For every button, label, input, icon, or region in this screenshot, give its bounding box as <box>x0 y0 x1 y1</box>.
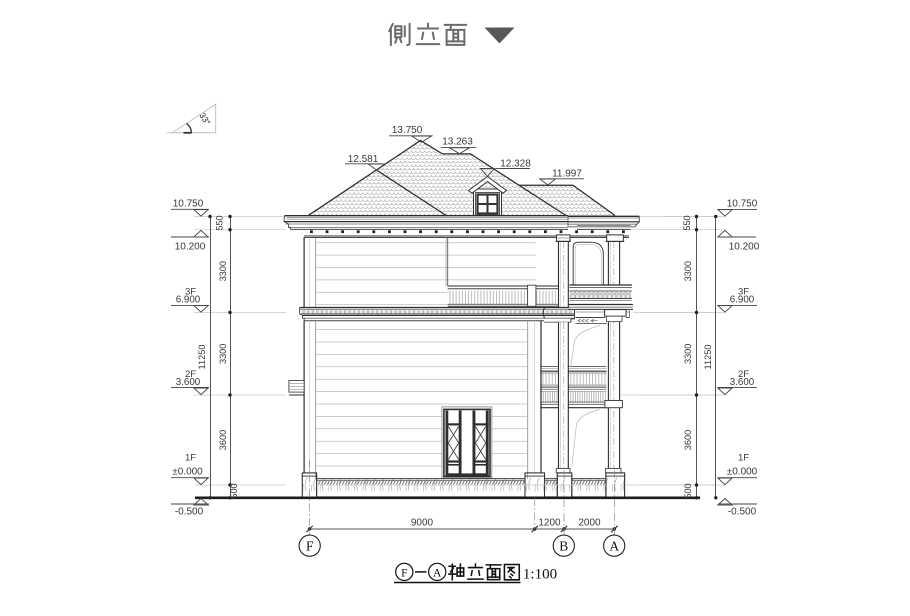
svg-text:B: B <box>559 539 568 554</box>
svg-text:11250: 11250 <box>703 345 713 370</box>
svg-text:A: A <box>433 567 442 579</box>
svg-text:-0.500: -0.500 <box>728 507 757 518</box>
svg-text:3.600: 3.600 <box>176 377 201 388</box>
svg-text:-0.500: -0.500 <box>175 507 204 518</box>
svg-text:1F: 1F <box>185 453 196 464</box>
svg-text:12.328: 12.328 <box>500 158 531 169</box>
svg-text:500: 500 <box>229 483 239 498</box>
svg-text:2000: 2000 <box>578 518 601 529</box>
svg-text:10.750: 10.750 <box>727 199 758 210</box>
svg-text:12.581: 12.581 <box>348 154 379 165</box>
svg-text:1F: 1F <box>738 453 749 464</box>
svg-text:±0.000: ±0.000 <box>727 466 758 477</box>
svg-text:3300: 3300 <box>683 344 693 364</box>
svg-text:11.997: 11.997 <box>552 169 582 180</box>
svg-text:9000: 9000 <box>411 518 434 529</box>
svg-text:A: A <box>609 539 619 554</box>
svg-text:10.200: 10.200 <box>175 242 206 253</box>
svg-text:1:100: 1:100 <box>523 567 557 583</box>
svg-text:500: 500 <box>683 483 693 498</box>
svg-text:1200: 1200 <box>538 518 561 529</box>
svg-text:F: F <box>401 567 407 579</box>
svg-text:3300: 3300 <box>218 261 228 281</box>
svg-text:3300: 3300 <box>218 344 228 364</box>
svg-text:3.600: 3.600 <box>730 377 755 388</box>
svg-text:11250: 11250 <box>197 345 207 370</box>
svg-text:550: 550 <box>682 215 692 230</box>
svg-text:550: 550 <box>215 215 225 230</box>
svg-text:6.900: 6.900 <box>176 295 201 306</box>
svg-text:3600: 3600 <box>683 430 693 450</box>
svg-text:±0.000: ±0.000 <box>172 466 203 477</box>
svg-text:10.750: 10.750 <box>173 199 204 210</box>
svg-text:6.900: 6.900 <box>730 295 755 306</box>
svg-text:10.200: 10.200 <box>729 242 760 253</box>
svg-text:13.263: 13.263 <box>442 137 473 148</box>
svg-text:3600: 3600 <box>218 430 228 450</box>
svg-text:13.750: 13.750 <box>392 125 423 136</box>
svg-text:F: F <box>306 539 314 554</box>
svg-text:3300: 3300 <box>683 261 693 281</box>
